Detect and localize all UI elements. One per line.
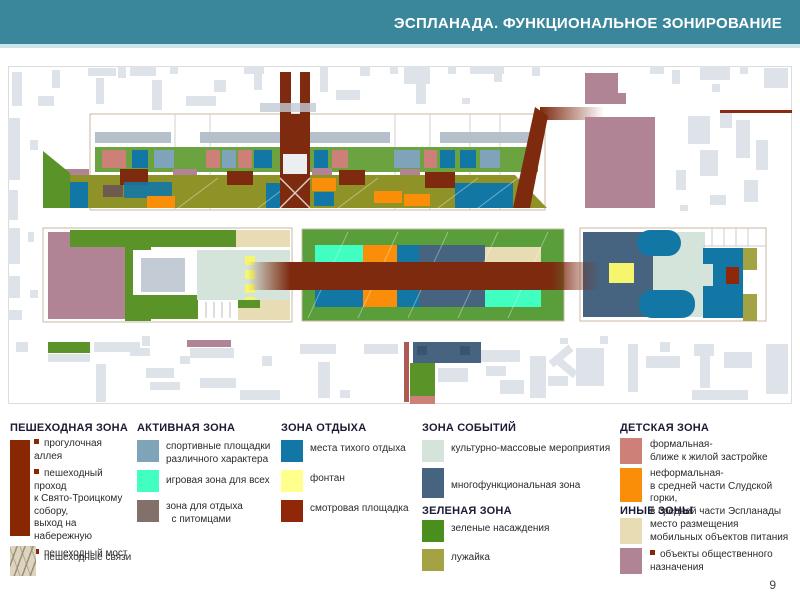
legend-item-label: формальная- ближе к жилой застройке bbox=[650, 439, 800, 464]
pedestrian-links-swatch bbox=[10, 546, 36, 576]
lower-esplanade-right bbox=[580, 228, 766, 321]
legend-item-label: игровая зона для всех bbox=[166, 475, 296, 488]
fountain-swatch bbox=[281, 470, 303, 492]
bullet-icon bbox=[650, 550, 655, 555]
legend-item-label: места тихого отдыха bbox=[310, 443, 430, 456]
food-spots-swatch bbox=[620, 518, 642, 544]
kids-formal-swatch bbox=[620, 438, 642, 464]
legend-item-label: пешеходный проход к Свято-Троицкому собо… bbox=[34, 468, 122, 542]
legend-item-label: культурно-массовые мероприятия bbox=[451, 443, 621, 456]
map-area bbox=[8, 66, 792, 404]
legend-title-other: ИНЫЕ ЗОНЫ bbox=[620, 505, 693, 517]
legend-item-label: смотровая площадка bbox=[310, 503, 430, 516]
site-plan-map bbox=[8, 66, 792, 404]
bullet-icon bbox=[34, 469, 39, 474]
pets-zone-swatch bbox=[137, 500, 159, 522]
red-path-line bbox=[720, 110, 792, 113]
legend-title-pedestrian: ПЕШЕХОДНАЯ ЗОНА bbox=[10, 422, 128, 434]
page-title: ЭСПЛАНАДА. ФУНКЦИОНАЛЬНОЕ ЗОНИРОВАНИЕ bbox=[394, 0, 782, 44]
header-accent-strip bbox=[0, 44, 800, 48]
greenery-swatch bbox=[422, 520, 444, 542]
legend: ПЕШЕХОДНАЯ ЗОНА прогулочная аллея пешехо… bbox=[0, 410, 800, 590]
legend-item: пешеходный проход к Свято-Троицкому собо… bbox=[34, 468, 130, 543]
sport-zone-swatch bbox=[137, 440, 159, 462]
legend-title-kids: ДЕТСКАЯ ЗОНА bbox=[620, 422, 709, 434]
legend-item-label: лужайка bbox=[451, 552, 611, 565]
legend-title-events: ЗОНА СОБЫТИЙ bbox=[422, 422, 516, 434]
bullet-icon bbox=[34, 439, 39, 444]
legend-item-label: объекты общественного назначения bbox=[650, 549, 773, 573]
legend-title-rest: ЗОНА ОТДЫХА bbox=[281, 422, 366, 434]
legend-item: объекты общественного назначения bbox=[650, 549, 800, 574]
page-number: 9 bbox=[769, 578, 776, 592]
legend-item-label: пешеходные связи bbox=[44, 552, 134, 565]
legend-item-label: спортивные площадки различного характера bbox=[166, 441, 296, 466]
legend-item-label: место размещения мобильных объектов пита… bbox=[650, 519, 800, 544]
multifunction-swatch bbox=[422, 468, 444, 498]
public-objects-swatch bbox=[620, 548, 642, 574]
play-zone-swatch bbox=[137, 470, 159, 492]
legend-title-active: АКТИВНАЯ ЗОНА bbox=[137, 422, 235, 434]
kids-informal-swatch bbox=[620, 468, 642, 502]
legend-item-label: зеленые насаждения bbox=[451, 523, 611, 536]
legend-item: прогулочная аллея bbox=[34, 438, 130, 463]
legend-title-green: ЗЕЛЕНАЯ ЗОНА bbox=[422, 505, 512, 517]
legend-item-label: зона для отдыха с питомцами bbox=[166, 501, 296, 526]
legend-item-label: прогулочная аллея bbox=[34, 438, 102, 462]
slide-header: ЭСПЛАНАДА. ФУНКЦИОНАЛЬНОЕ ЗОНИРОВАНИЕ bbox=[0, 0, 800, 44]
pedestrian-corridor-horizontal bbox=[248, 262, 600, 290]
legend-item-label: многофункциональная зона bbox=[451, 480, 621, 493]
pedestrian-zone-swatch bbox=[10, 440, 30, 536]
pedestrian-items: прогулочная аллея пешеходный проход к Св… bbox=[34, 438, 130, 566]
lawn-swatch bbox=[422, 549, 444, 571]
legend-item-label: фонтан bbox=[310, 473, 430, 486]
events-culture-swatch bbox=[422, 440, 444, 462]
viewpoint-swatch bbox=[281, 500, 303, 522]
quiet-rest-swatch bbox=[281, 440, 303, 462]
